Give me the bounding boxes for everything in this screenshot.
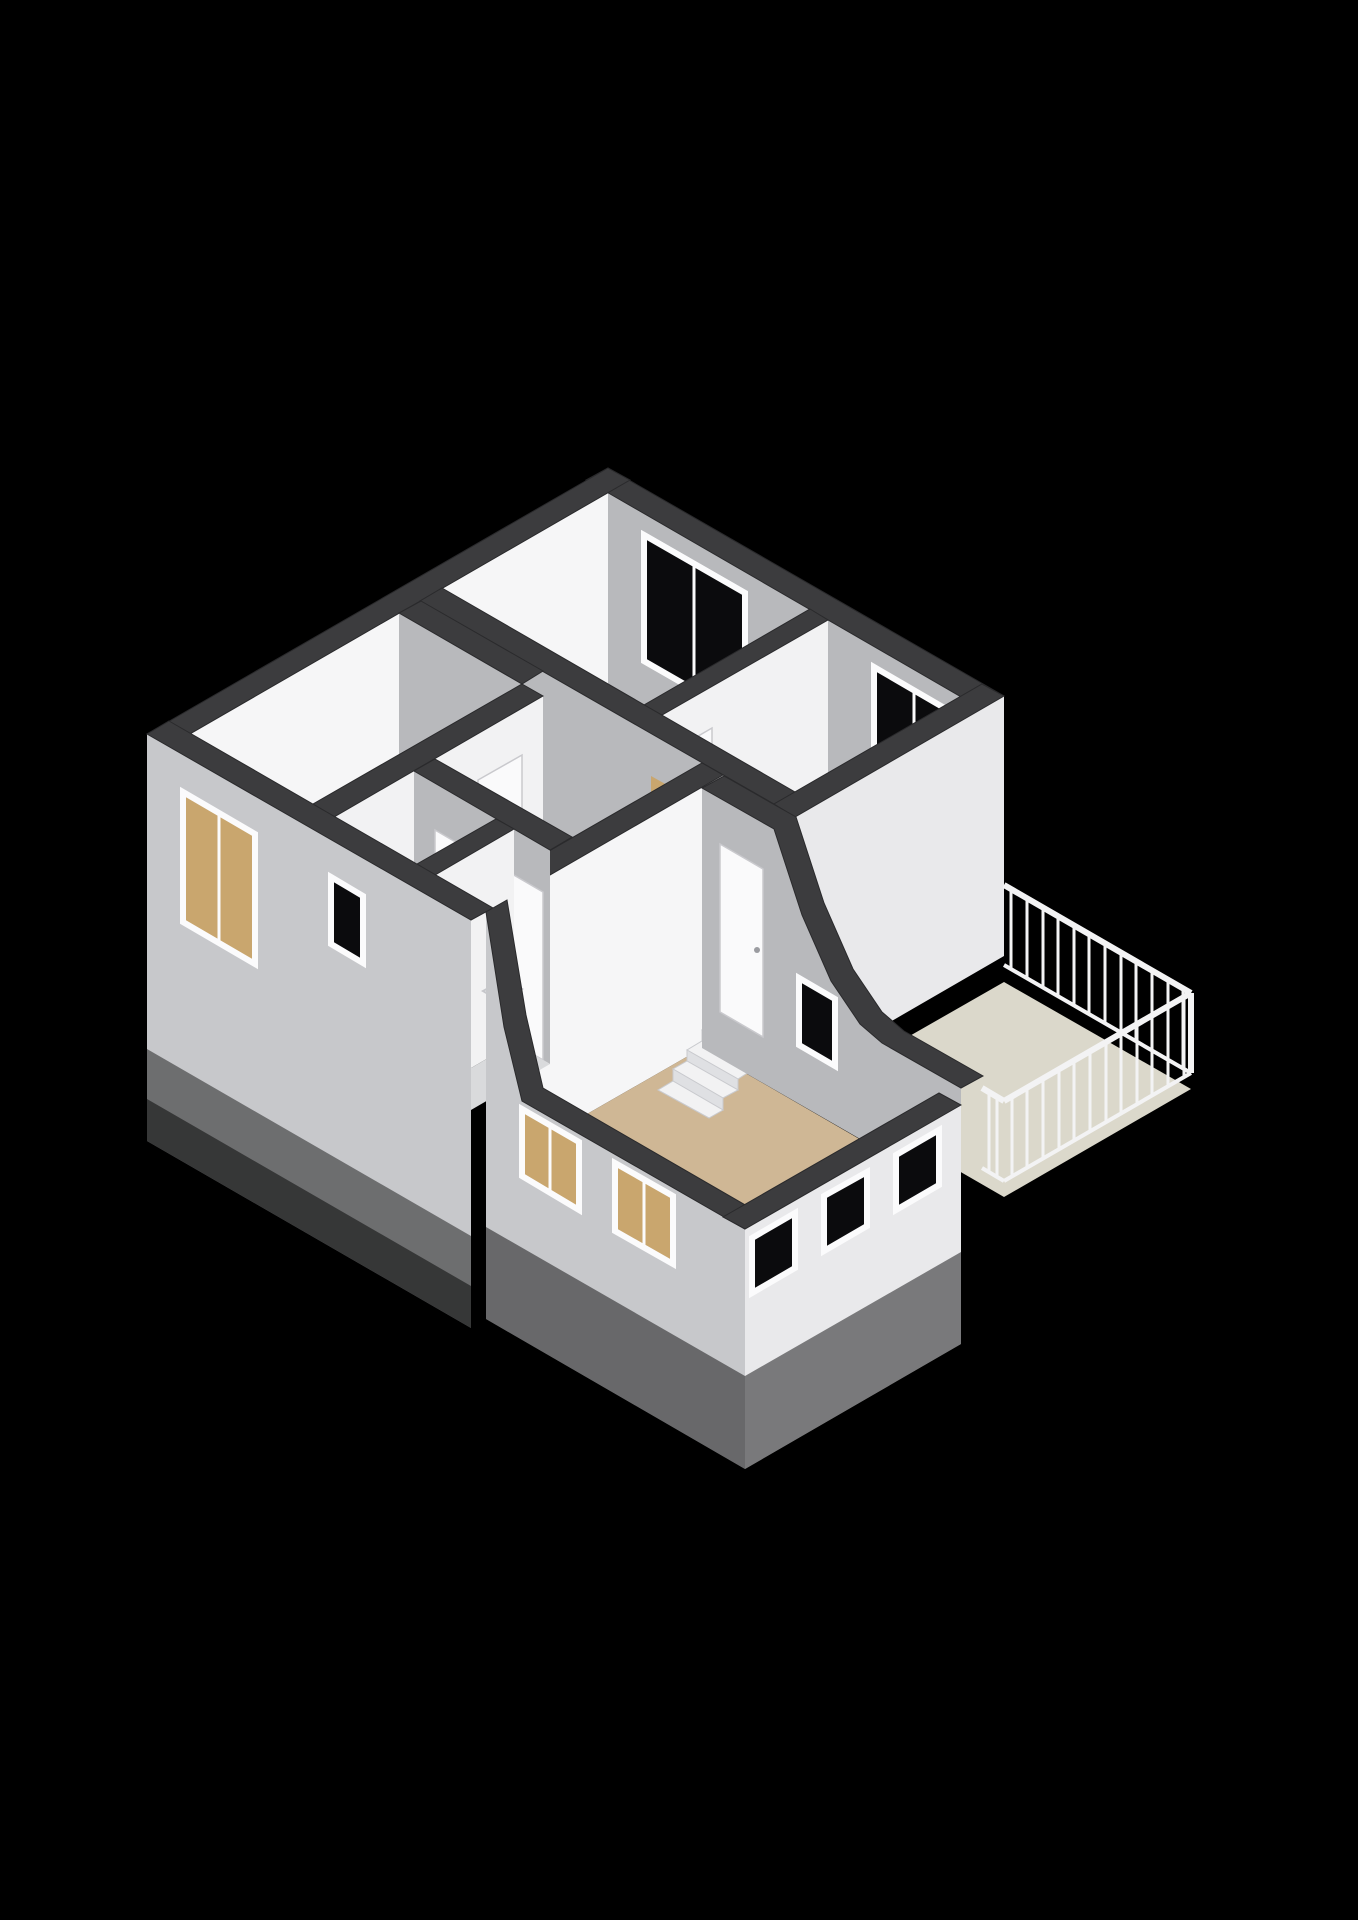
floorplan-canvas <box>0 0 1358 1920</box>
door-handle <box>754 947 760 953</box>
door-balcony <box>720 844 763 1037</box>
floorplan-3d-render <box>0 0 1358 1920</box>
window-bathroom-facade <box>331 877 363 963</box>
